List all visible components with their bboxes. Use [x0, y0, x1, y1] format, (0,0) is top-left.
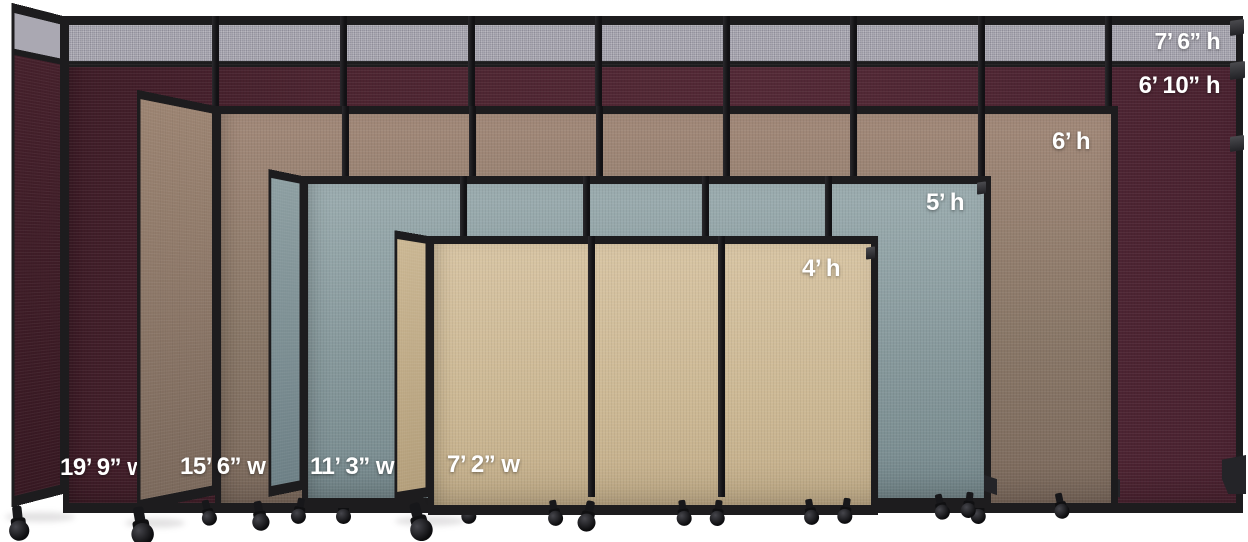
end-panel	[394, 230, 428, 503]
hinge-bracket	[866, 246, 875, 259]
caster-wheel	[584, 500, 595, 517]
partition-sand: 4’ h 7’ 2” w	[0, 0, 1248, 542]
end-panel-fabric	[397, 239, 425, 492]
caster-wheel	[714, 500, 722, 514]
frame-post	[718, 236, 725, 497]
frame-post	[588, 236, 595, 497]
caster-wheel	[842, 498, 851, 512]
width-label-7ft2: 7’ 2” w	[447, 451, 520, 479]
caster-wheel	[409, 502, 424, 524]
room-divider-size-comparison: 7’ 6” h 6’ 10” h 19’ 9” w 6’ h 15’ 6” w	[0, 0, 1248, 542]
height-label-4ft: 4’ h	[746, 255, 840, 283]
